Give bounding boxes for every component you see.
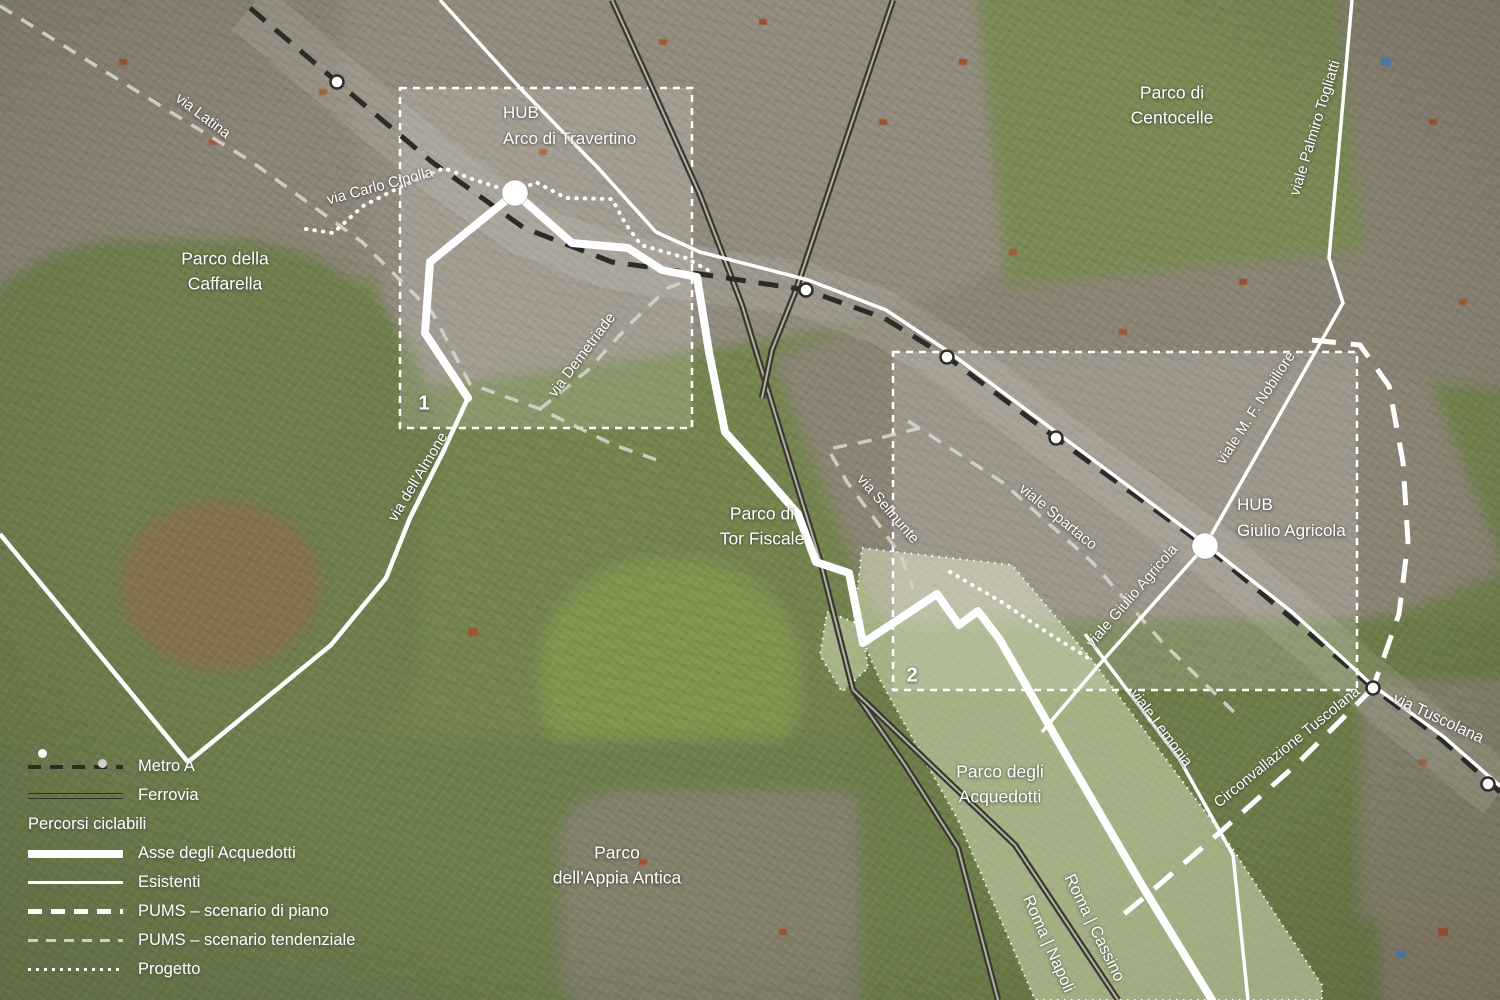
park-label-tor-fiscale: Parco di Tor Fiscale: [720, 502, 805, 553]
metro-line-swatch: [28, 765, 138, 769]
legend-row-progetto: Progetto: [28, 955, 355, 984]
legend-row-pums-piano: PUMS – scenario di piano: [28, 897, 355, 926]
region-number-1: 1: [418, 393, 429, 416]
progetto-line-swatch: [28, 968, 138, 972]
hub-title: HUB: [1237, 492, 1346, 518]
hub-label-arco: HUB Arco di Travertino: [503, 100, 636, 151]
legend-label-asse: Asse degli Acquedotti: [138, 844, 296, 863]
park-label-line2: Caffarella: [181, 272, 269, 297]
park-label-line1: Parco: [553, 841, 681, 866]
legend-row-pums-tendenziale: PUMS – scenario tendenziale: [28, 926, 355, 955]
hub-name: Arco di Travertino: [503, 126, 636, 152]
esistenti-line-swatch: [28, 881, 138, 885]
park-label-line2: Centocelle: [1131, 106, 1214, 131]
park-label-line2: dell’Appia Antica: [553, 866, 681, 891]
legend: Metro A Ferrovia Percorsi ciclabili Asse…: [28, 752, 355, 984]
legend-label-metro: Metro A: [138, 757, 195, 776]
pums-tendenziale-line-swatch: [28, 939, 138, 942]
region-number-2: 2: [906, 665, 917, 688]
legend-label-pums-piano: PUMS – scenario di piano: [138, 902, 329, 921]
legend-label-esistenti: Esistenti: [138, 873, 200, 892]
park-label-line2: Acquedotti: [956, 785, 1044, 810]
hub-name: Giulio Agricola: [1237, 518, 1346, 544]
park-label-line2: Tor Fiscale: [720, 527, 805, 552]
hub-title: HUB: [503, 100, 636, 126]
metro-stop-dot: [98, 759, 107, 768]
legend-header-percorsi: Percorsi ciclabili: [28, 815, 146, 834]
legend-row-header: Percorsi ciclabili: [28, 810, 355, 839]
park-label-line1: Parco della: [181, 247, 269, 272]
ferrovia-line-swatch: [28, 793, 138, 799]
hub-label-giulio: HUB Giulio Agricola: [1237, 492, 1346, 543]
legend-row-ferrovia: Ferrovia: [28, 781, 355, 810]
legend-row-metro: Metro A: [28, 752, 355, 781]
park-label-caffarella: Parco della Caffarella: [181, 247, 269, 298]
legend-label-ferrovia: Ferrovia: [138, 786, 199, 805]
asse-line-swatch: [28, 850, 138, 858]
park-label-line1: Parco di: [1131, 81, 1214, 106]
park-label-line1: Parco degli: [956, 760, 1044, 785]
legend-label-pums-tendenziale: PUMS – scenario tendenziale: [138, 931, 355, 950]
park-label-line1: Parco di: [720, 502, 805, 527]
legend-row-asse: Asse degli Acquedotti: [28, 839, 355, 868]
legend-row-esistenti: Esistenti: [28, 868, 355, 897]
metro-stop-dot: [38, 749, 47, 758]
map-canvas: via Latina via Carlo Cipolla via Demetri…: [0, 0, 1500, 1000]
park-label-appia: Parco dell’Appia Antica: [553, 841, 681, 892]
pums-piano-line-swatch: [28, 909, 138, 914]
hub-marker-arco: [502, 180, 528, 206]
legend-label-progetto: Progetto: [138, 960, 200, 979]
park-label-centocelle: Parco di Centocelle: [1131, 81, 1214, 132]
hub-marker-giulio: [1192, 533, 1218, 559]
park-label-acquedotti: Parco degli Acquedotti: [956, 760, 1044, 811]
